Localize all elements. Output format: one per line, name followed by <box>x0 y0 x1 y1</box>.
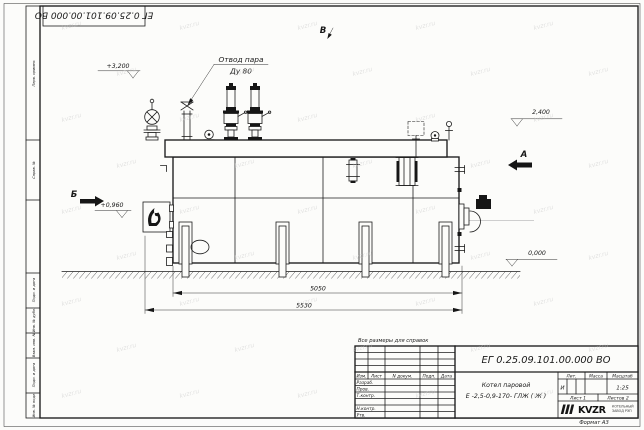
support-leg <box>179 222 192 277</box>
watermark-text: kvzr.ru <box>470 250 492 262</box>
margin-label: Инв. № дубл. <box>32 308 36 333</box>
watermark-text: kvzr.ru <box>297 112 319 124</box>
org-name-line2: ЗАВОД РЭП <box>612 409 632 413</box>
watermark-text: kvzr.ru <box>61 112 83 124</box>
ground <box>62 272 520 279</box>
elevation-zero: 0,000 <box>506 250 557 266</box>
watermark-text: kvzr.ru <box>588 158 610 170</box>
safety-valve-1 <box>223 83 247 140</box>
view-label-b: Б <box>71 190 104 207</box>
watermark-text: kvzr.ru <box>234 342 256 354</box>
col-massa: Масса <box>589 373 603 379</box>
watermark-text: kvzr.ru <box>179 388 201 400</box>
corner-stamp-number: ЕГ 0.25.09.101.00.000 ВО <box>35 10 153 20</box>
view-label-a: А <box>508 150 532 171</box>
level-gauge-column <box>396 158 418 186</box>
col-izm: Изм. <box>356 373 366 379</box>
svg-text:А: А <box>520 150 528 160</box>
drawing-sheet: Перв. примен. Справ. № Подп. и дата Инв.… <box>0 0 644 430</box>
svg-text:+0,960: +0,960 <box>101 202 124 209</box>
watermark-text: kvzr.ru <box>588 66 610 78</box>
row-nkontr: Н.контр. <box>357 406 376 412</box>
callout-line1: Отвод пара <box>218 55 264 64</box>
watermark-text: kvzr.ru <box>116 342 138 354</box>
row-utv: Утв. <box>357 412 366 418</box>
view-arrow-down <box>327 33 332 39</box>
left-wall-fittings <box>167 232 173 266</box>
margin-label: Подп. и дата <box>32 278 36 302</box>
watermark-text: kvzr.ru <box>415 296 437 308</box>
boiler-drawing <box>62 83 534 279</box>
col-doc: N докум. <box>393 373 413 379</box>
watermark-text: kvzr.ru <box>61 388 83 400</box>
watermark-text: kvzr.ru <box>116 250 138 262</box>
deck-end-stub <box>446 121 453 140</box>
watermark-text: kvzr.ru <box>470 158 492 170</box>
watermark-text: kvzr.ru <box>533 204 555 216</box>
watermark-text: kvzr.ru <box>61 20 83 32</box>
watermark-text: kvzr.ru <box>297 20 319 32</box>
support-leg <box>276 222 289 277</box>
row-razrab: Разраб. <box>357 380 374 386</box>
logo-text: KVZR <box>578 405 607 416</box>
watermark-text: kvzr.ru <box>533 296 555 308</box>
watermark-text: kvzr.ru <box>415 112 437 124</box>
svg-text:В: В <box>320 26 327 36</box>
dimension-5050: 5050 <box>310 286 326 293</box>
watermark-text: kvzr.ru <box>588 250 610 262</box>
margin-label: Взам. инв. № <box>32 333 36 358</box>
watermark-text: kvzr.ru <box>533 20 555 32</box>
watermark-text: kvzr.ru <box>470 66 492 78</box>
watermark-text: kvzr.ru <box>116 158 138 170</box>
safety-valve-2 <box>247 83 271 140</box>
view-label-v: В <box>320 26 333 39</box>
watermark-text: kvzr.ru <box>179 296 201 308</box>
lifting-eye <box>431 132 439 142</box>
margin-label: Справ. № <box>32 161 36 179</box>
svg-text:Б: Б <box>71 190 78 200</box>
row-prov: Пров. <box>357 387 370 393</box>
elevation-burner: +0,960 <box>95 202 131 218</box>
col-list: Лист <box>370 373 382 379</box>
doc-number: ЕГ 0.25.09.101.00.000 ВО <box>482 355 611 366</box>
product-name-line1: Котел паровой <box>482 382 531 389</box>
steam-outlet-valve <box>144 99 160 140</box>
title-block: Изм. Лист N докум. Подп. Дата Разраб. Пр… <box>355 346 638 418</box>
col-lit: Лит. <box>566 373 577 379</box>
view-arrow-left <box>508 160 532 171</box>
watermark-text: kvzr.ru <box>352 66 374 78</box>
row-tkontr: Т.контр. <box>357 393 376 399</box>
margin-label: Перв. примен. <box>32 60 36 87</box>
format-label: Формат А3 <box>579 420 609 426</box>
watermark-text: kvzr.ru <box>297 388 319 400</box>
col-data: Дата <box>440 373 452 379</box>
deck-round-fitting <box>204 130 214 140</box>
margin-label: Инв. № подл. <box>32 393 36 418</box>
pump-assembly <box>459 195 534 232</box>
watermark-text: kvzr.ru <box>61 296 83 308</box>
burner-box <box>143 202 174 232</box>
watermark-text: kvzr.ru <box>179 20 201 32</box>
margin-stamp-column: Перв. примен. Справ. № Подп. и дата Инв.… <box>26 6 40 418</box>
support-leg <box>439 222 452 277</box>
watermark-text: kvzr.ru <box>415 20 437 32</box>
watermark-text: kvzr.ru <box>61 204 83 216</box>
margin-label: Подп. и дата <box>32 363 36 387</box>
col-scale: Масштаб <box>612 373 633 379</box>
col-podp: Подп. <box>422 373 435 379</box>
steam-outlet-callout: Отвод пара Ду 80 <box>188 55 269 106</box>
svg-text:0,000: 0,000 <box>528 250 546 257</box>
scale-value: 1:25 <box>616 386 629 392</box>
corner-stamp: ЕГ 0.25.09.101.00.000 ВО <box>35 6 153 26</box>
org-name-line1: КОТЕЛЬНЫЙ <box>612 404 634 409</box>
